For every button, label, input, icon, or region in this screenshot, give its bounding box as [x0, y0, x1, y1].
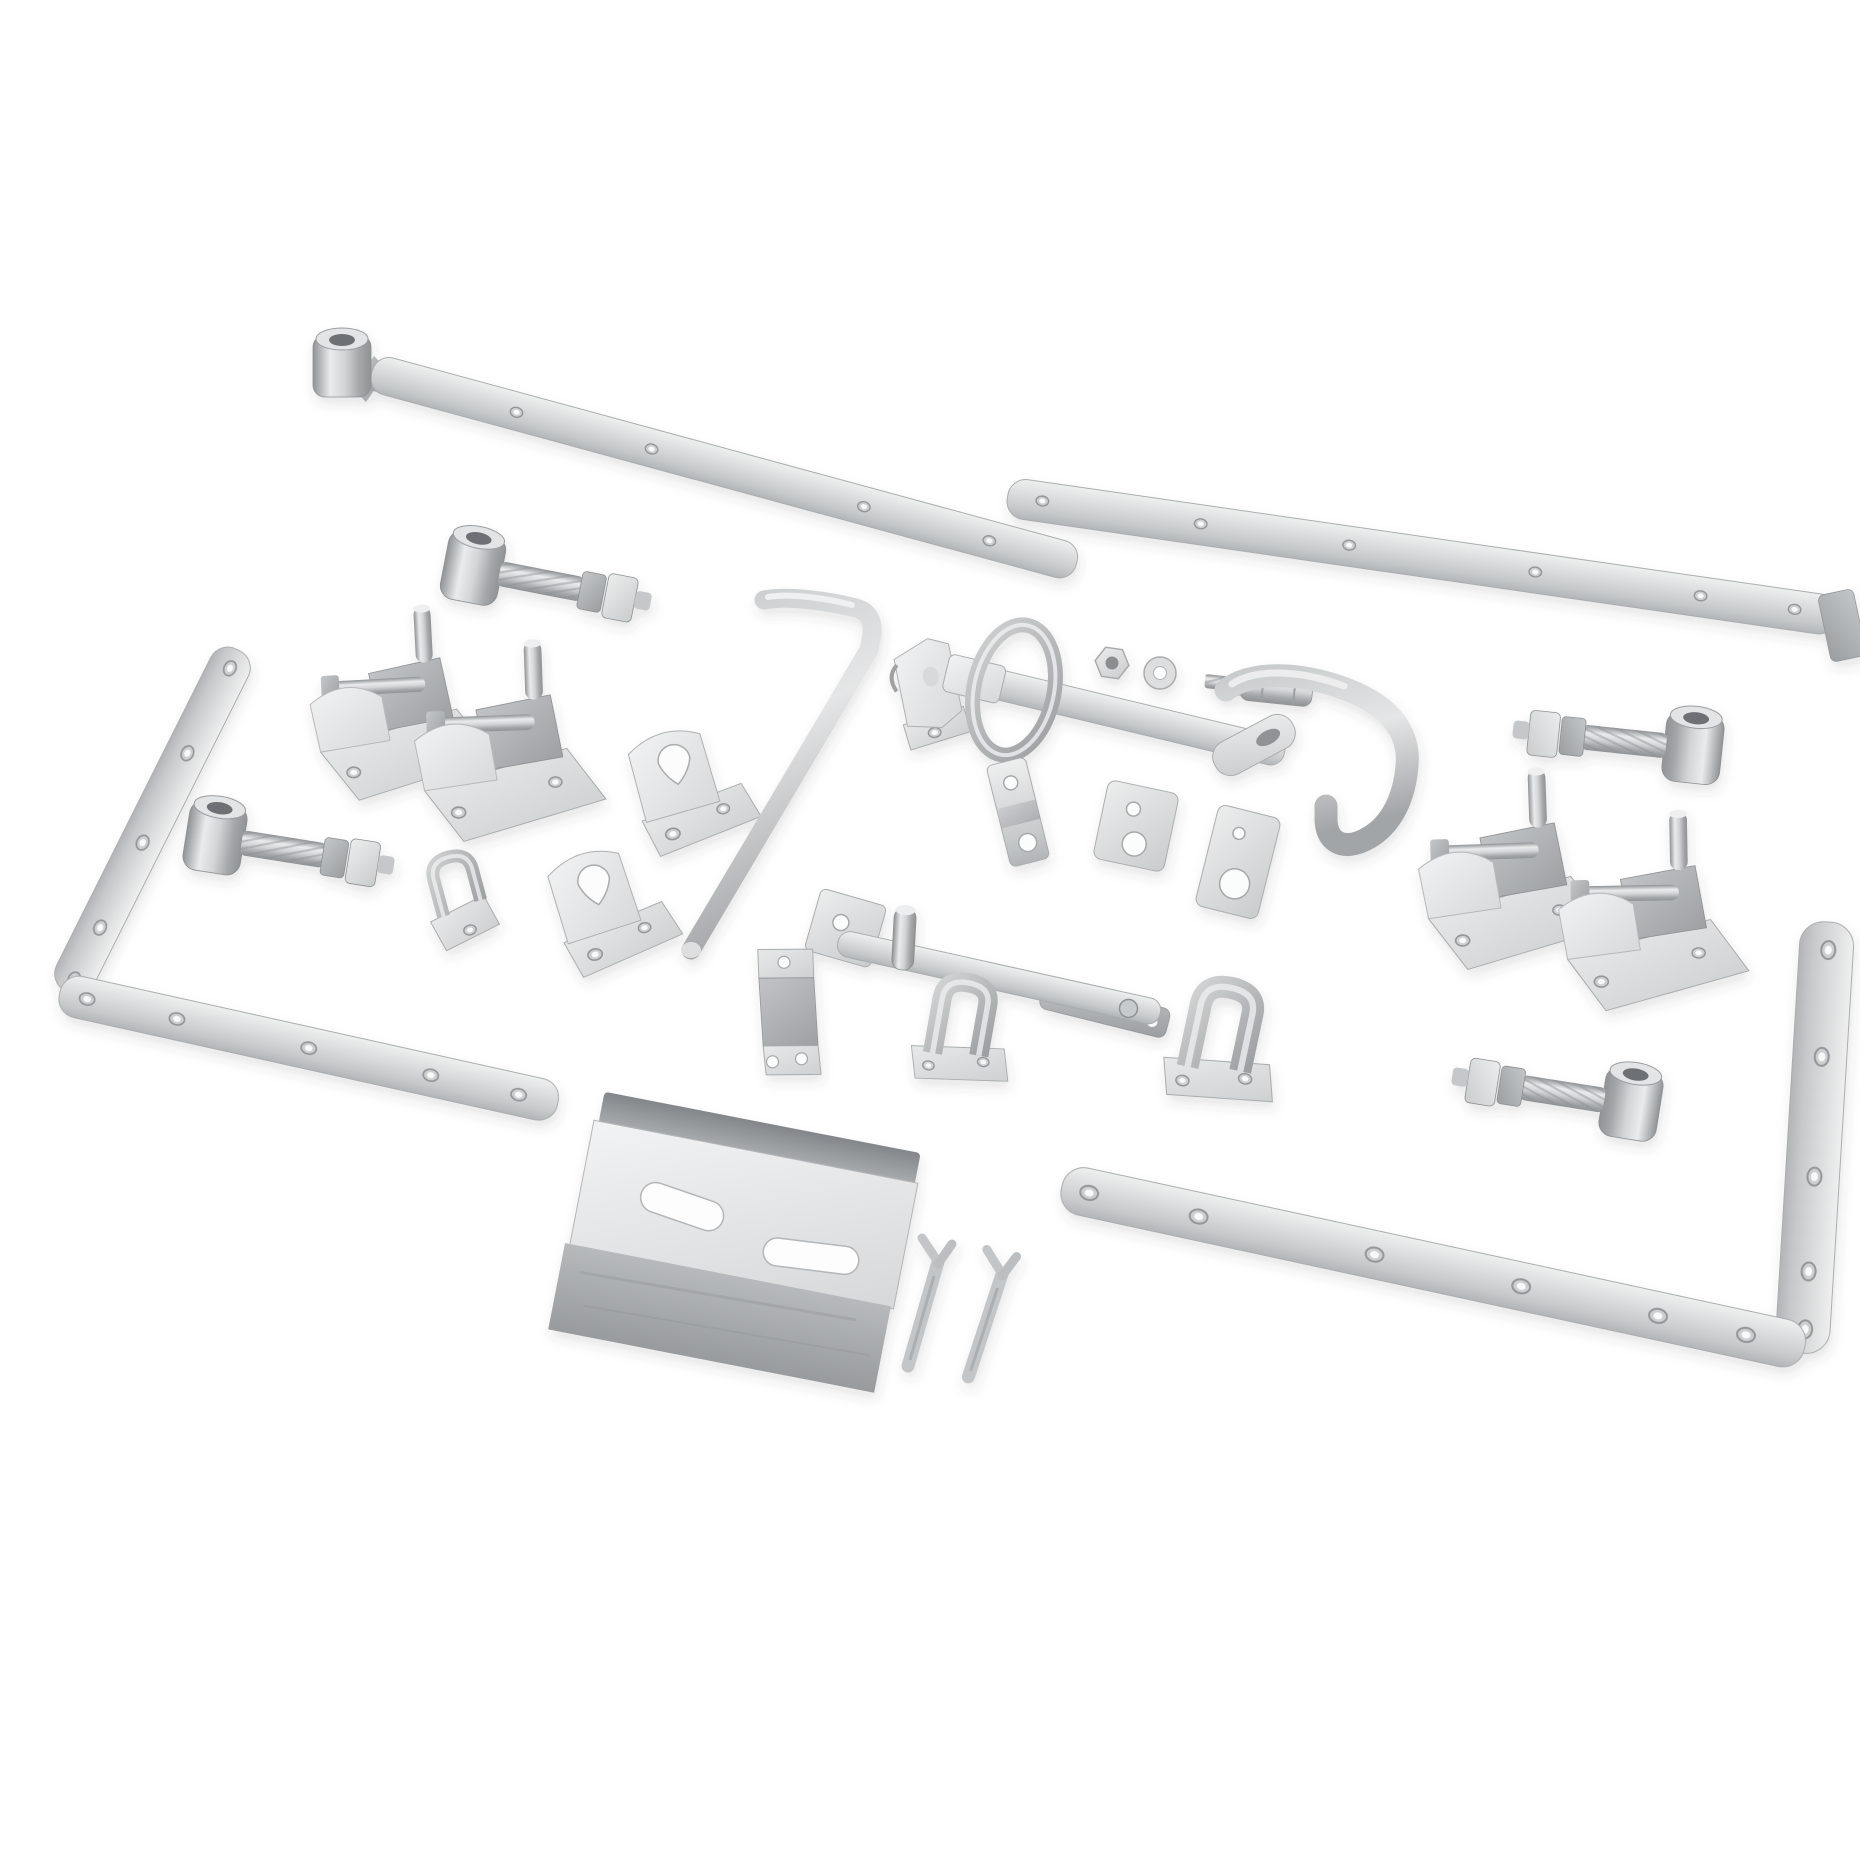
teardrop-bracket-2	[545, 837, 688, 981]
washer	[1144, 657, 1176, 689]
eye-tab	[1207, 708, 1302, 781]
z-bracket	[737, 940, 843, 1085]
corner-strap-right	[1057, 920, 1855, 1371]
product-photo	[0, 0, 1860, 1860]
saddle-clip-2	[1156, 977, 1293, 1116]
cranked-keeper	[986, 757, 1050, 868]
catch-hole-plate	[1194, 804, 1281, 920]
hinge-band-top-right	[1005, 477, 1860, 662]
eye-bolt-2	[181, 792, 400, 901]
hex-nut	[1093, 646, 1131, 680]
twin-hole-plate	[1092, 779, 1179, 872]
cotter-pin-2	[968, 1249, 1016, 1378]
hardware-kit-photo	[0, 0, 1860, 1860]
eye-bolt-1	[438, 521, 659, 637]
teardrop-bracket-1	[626, 718, 765, 858]
shoe-bracket-4	[1557, 809, 1750, 1012]
cotter-pin-1	[908, 1238, 952, 1366]
hook-keeper-plate	[416, 849, 503, 953]
hinge-band-top-left	[313, 328, 1081, 582]
eye-bolt-4	[1447, 1034, 1666, 1143]
spring-catch-plate	[548, 1090, 923, 1393]
